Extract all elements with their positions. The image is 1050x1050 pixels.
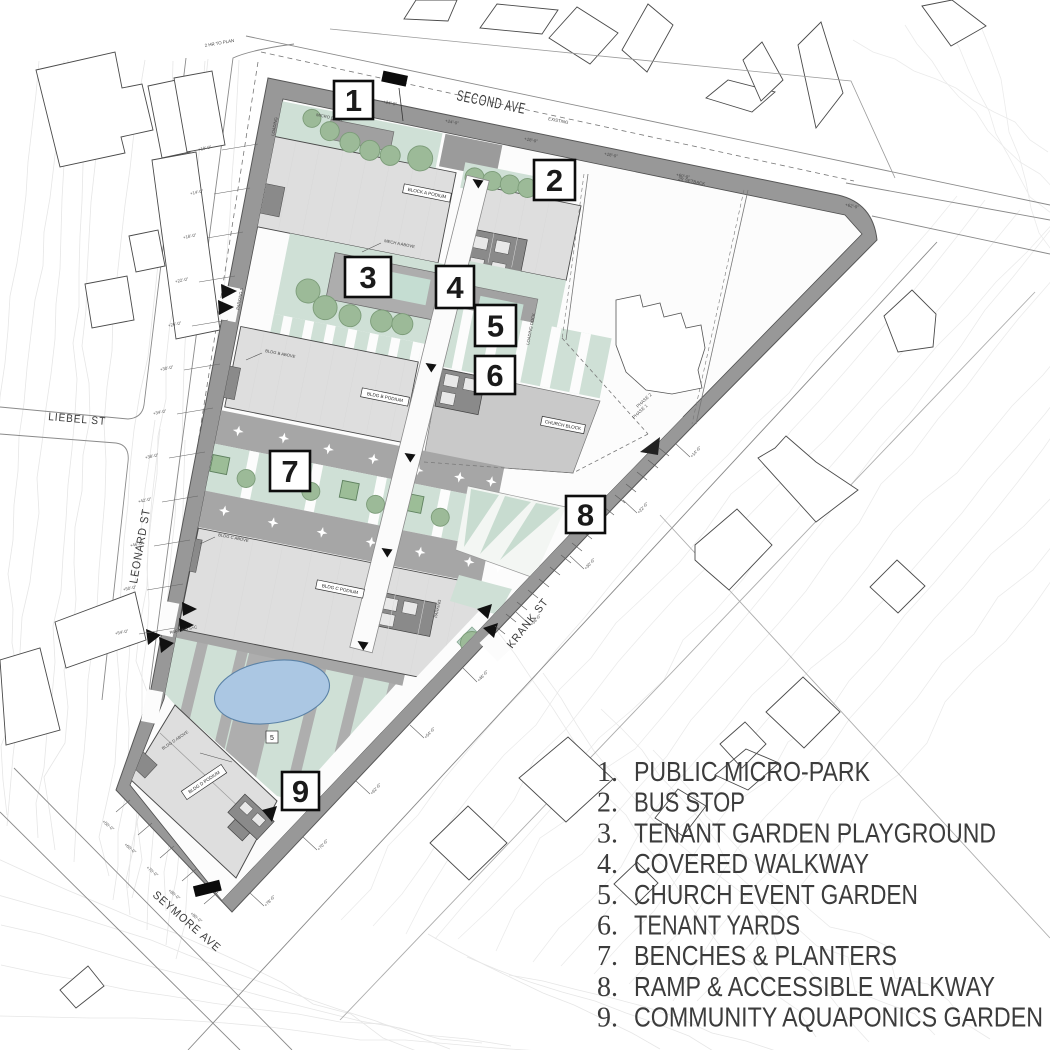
svg-text:3: 3	[359, 260, 376, 295]
svg-text:COVERED WALKWAY: COVERED WALKWAY	[634, 848, 869, 879]
svg-text:6: 6	[486, 358, 503, 393]
svg-text:2.: 2.	[597, 788, 618, 819]
svg-text:8: 8	[577, 498, 594, 533]
svg-text:4.: 4.	[597, 849, 618, 880]
svg-text:7: 7	[281, 454, 298, 489]
svg-text:2: 2	[546, 163, 563, 198]
svg-text:TENANT GARDEN PLAYGROUND: TENANT GARDEN PLAYGROUND	[634, 817, 996, 848]
svg-text:RAMP & ACCESSIBLE WALKWAY: RAMP & ACCESSIBLE WALKWAY	[634, 971, 995, 1002]
svg-text:CHURCH EVENT GARDEN: CHURCH EVENT GARDEN	[634, 879, 918, 910]
svg-text:8.: 8.	[597, 972, 618, 1003]
svg-text:9: 9	[292, 774, 309, 809]
svg-text:1: 1	[345, 83, 362, 118]
svg-text:4: 4	[446, 270, 464, 305]
svg-text:COMMUNITY AQUAPONICS GARDEN: COMMUNITY AQUAPONICS GARDEN	[634, 1002, 1043, 1033]
svg-text:BENCHES & PLANTERS: BENCHES & PLANTERS	[634, 940, 897, 971]
svg-text:3.: 3.	[597, 818, 618, 849]
svg-text:5: 5	[270, 735, 274, 742]
svg-text:BUS STOP: BUS STOP	[634, 787, 745, 818]
svg-text:5: 5	[487, 309, 504, 344]
svg-text:5.: 5.	[597, 880, 618, 911]
svg-text:7.: 7.	[597, 941, 618, 972]
svg-text:TENANT YARDS: TENANT YARDS	[634, 910, 800, 941]
svg-text:9.: 9.	[597, 1003, 618, 1034]
svg-text:6.: 6.	[597, 911, 618, 942]
svg-text:1.: 1.	[597, 757, 618, 788]
svg-text:PUBLIC MICRO-PARK: PUBLIC MICRO-PARK	[634, 756, 870, 787]
